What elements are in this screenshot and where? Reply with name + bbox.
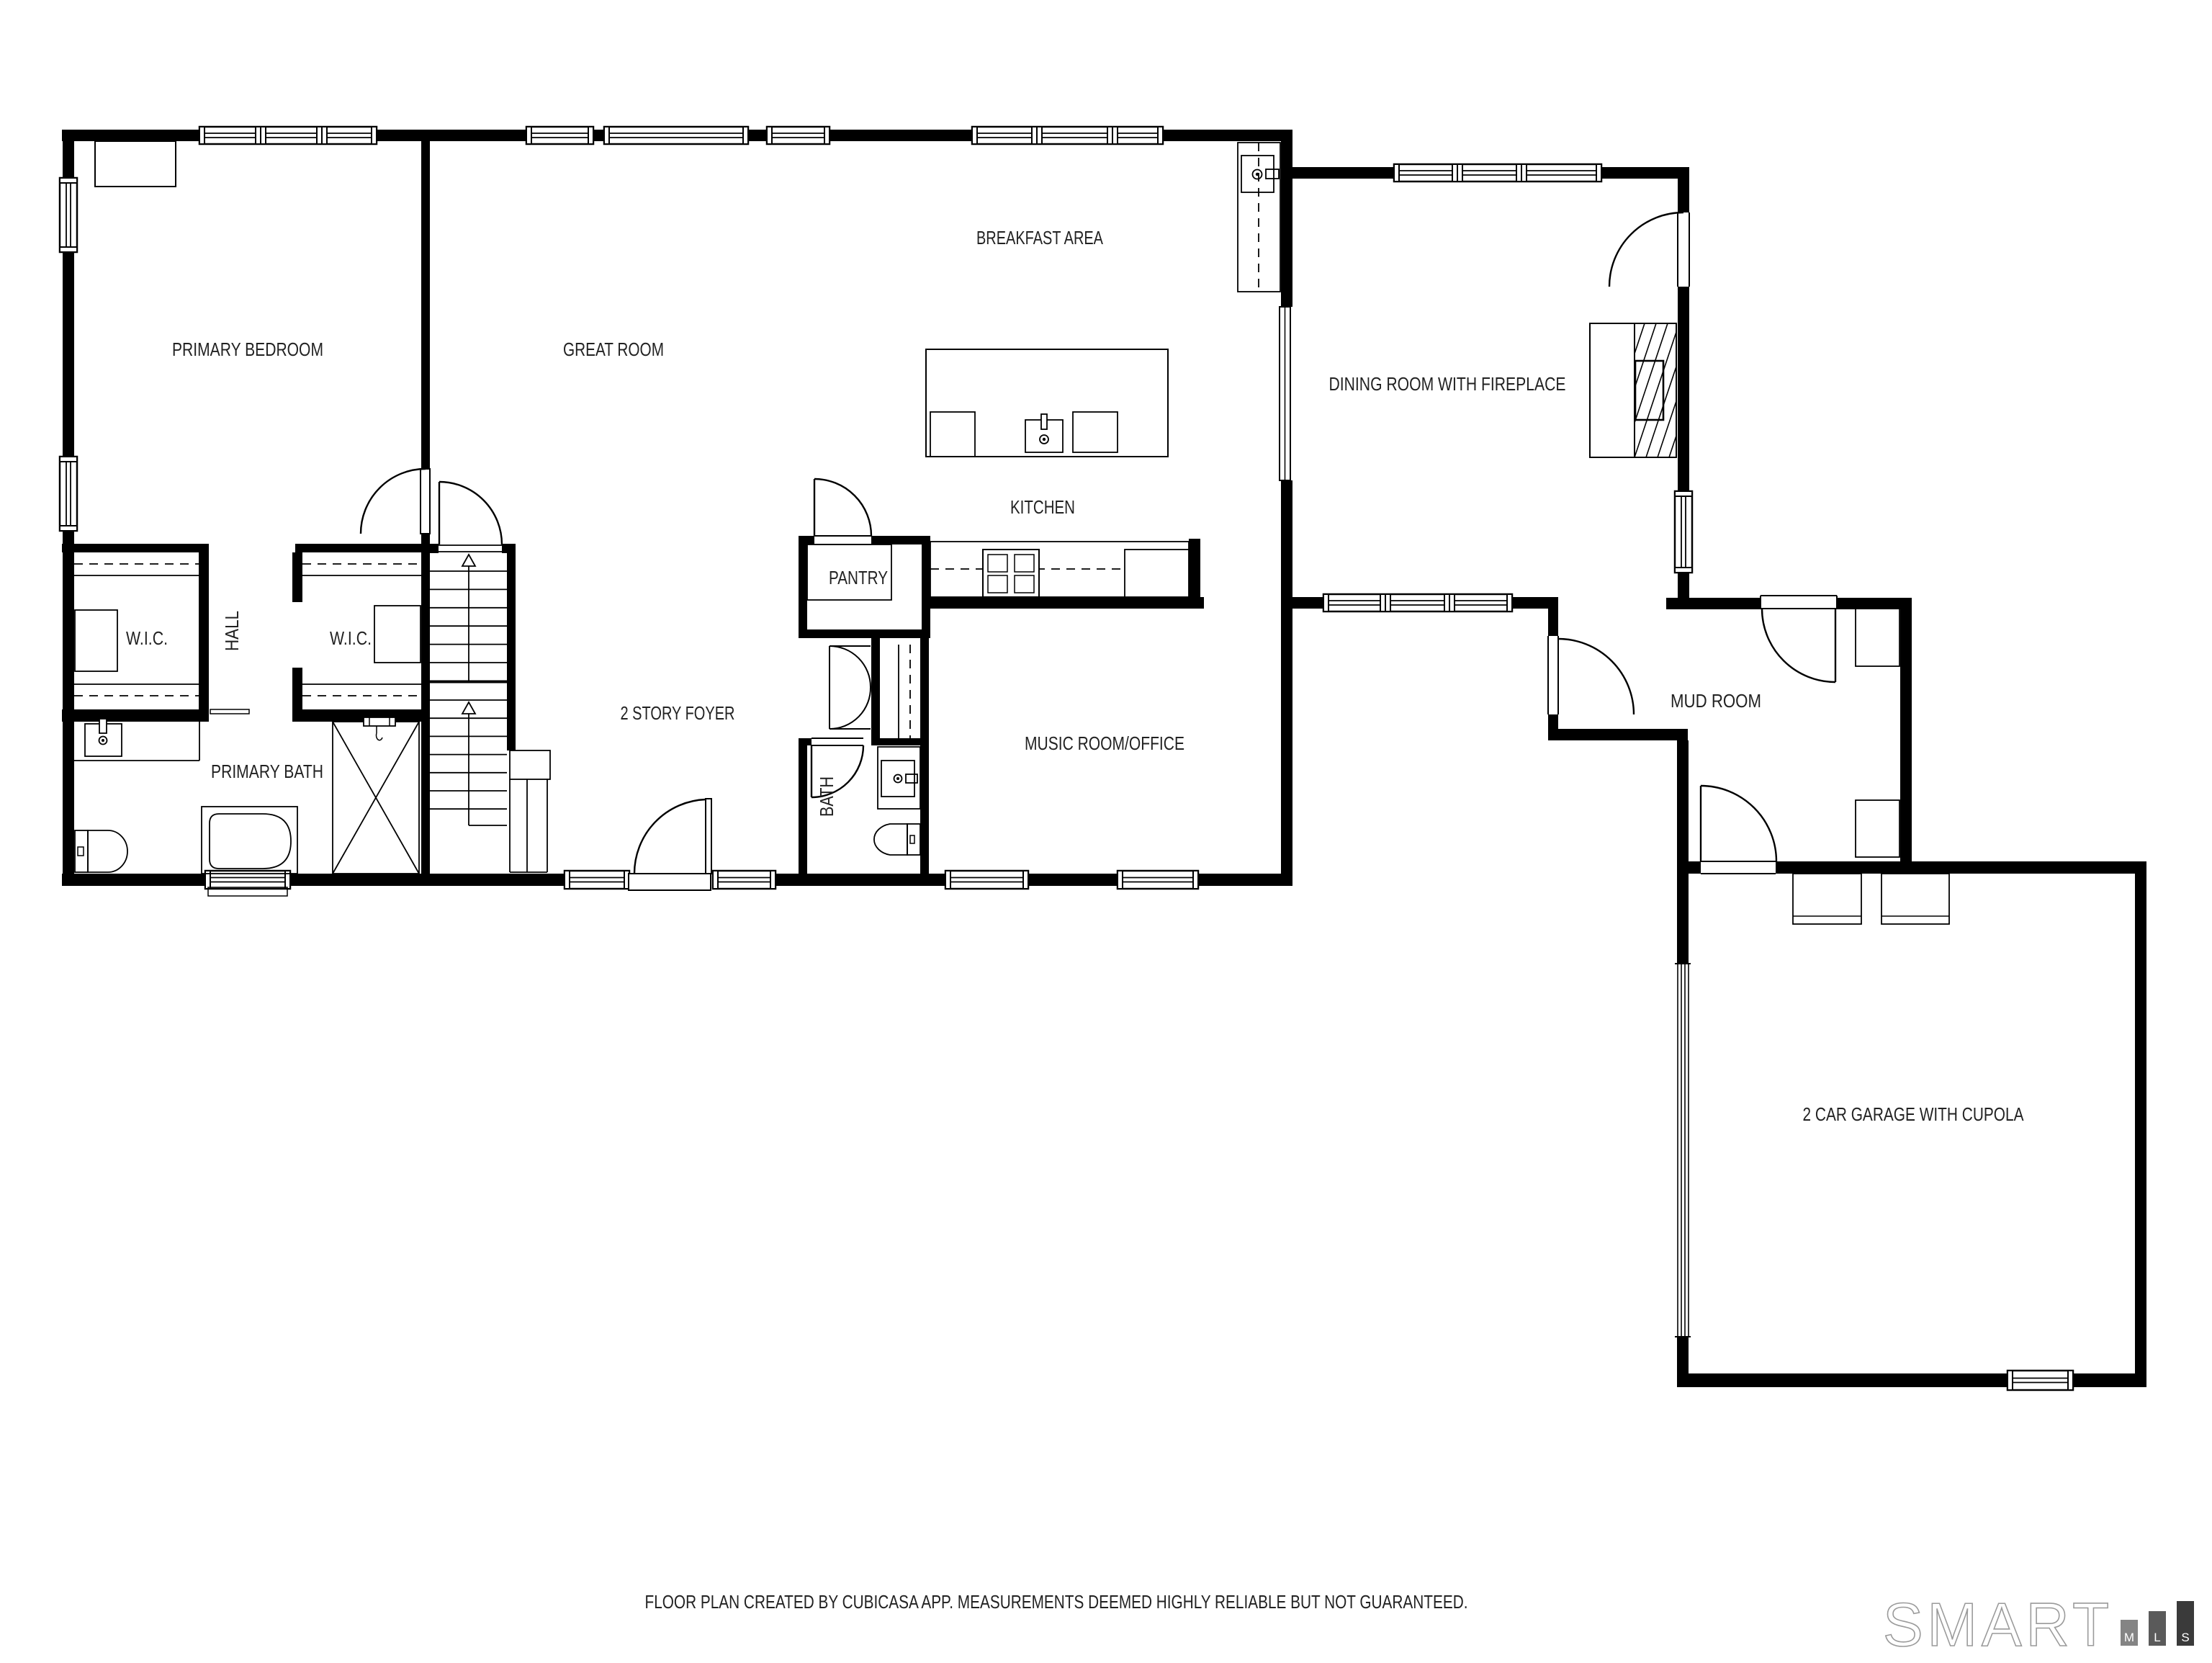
svg-text:L: L xyxy=(2154,1631,2160,1644)
svg-text:MUD ROOM: MUD ROOM xyxy=(1671,690,1761,712)
svg-text:M: M xyxy=(2124,1631,2134,1644)
svg-text:DINING ROOM WITH FIREPLACE: DINING ROOM WITH FIREPLACE xyxy=(1329,373,1566,395)
svg-text:SMART: SMART xyxy=(1883,1591,2113,1659)
svg-text:KITCHEN: KITCHEN xyxy=(1010,496,1075,518)
svg-text:PRIMARY BEDROOM: PRIMARY BEDROOM xyxy=(172,339,323,360)
svg-text:2 STORY FOYER: 2 STORY FOYER xyxy=(621,702,735,724)
svg-text:HALL: HALL xyxy=(221,611,243,651)
svg-text:MUSIC ROOM/OFFICE: MUSIC ROOM/OFFICE xyxy=(1025,732,1184,754)
svg-text:S: S xyxy=(2181,1631,2189,1644)
svg-text:FLOOR PLAN CREATED BY CUBICASA: FLOOR PLAN CREATED BY CUBICASA APP. MEAS… xyxy=(645,1591,1468,1613)
svg-text:GREAT ROOM: GREAT ROOM xyxy=(563,339,664,360)
svg-text:PRIMARY BATH: PRIMARY BATH xyxy=(211,761,323,782)
svg-text:PANTRY: PANTRY xyxy=(829,567,888,588)
svg-text:BREAKFAST AREA: BREAKFAST AREA xyxy=(976,227,1104,248)
svg-text:2 CAR GARAGE WITH CUPOLA: 2 CAR GARAGE WITH CUPOLA xyxy=(1803,1103,2025,1125)
svg-text:W.I.C.: W.I.C. xyxy=(126,627,168,649)
svg-text:BATH: BATH xyxy=(816,776,837,817)
svg-text:W.I.C.: W.I.C. xyxy=(330,627,372,649)
